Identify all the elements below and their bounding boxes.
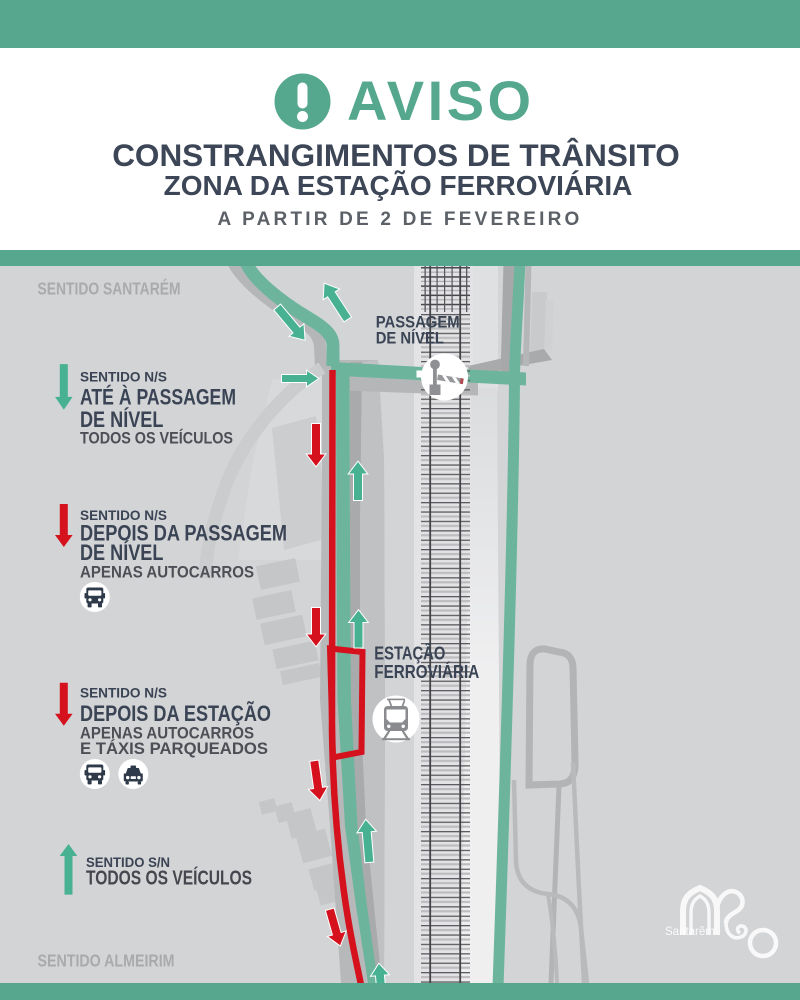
- svg-text:SENTIDO N/S: SENTIDO N/S: [80, 369, 167, 385]
- svg-text:SENTIDO N/S: SENTIDO N/S: [80, 684, 167, 700]
- svg-text:DEPOIS DA ESTAÇÃO: DEPOIS DA ESTAÇÃO: [80, 701, 271, 726]
- svg-text:SENTIDO ALMEIRIM: SENTIDO ALMEIRIM: [38, 951, 175, 971]
- svg-text:SENTIDO SANTARÉM: SENTIDO SANTARÉM: [38, 278, 181, 299]
- svg-text:FERROVIÁRIA: FERROVIÁRIA: [374, 661, 479, 682]
- svg-text:TODOS OS VEÍCULOS: TODOS OS VEÍCULOS: [80, 428, 233, 447]
- svg-text:ATÉ À PASSAGEM: ATÉ À PASSAGEM: [80, 384, 236, 409]
- svg-text:DE NÍVEL: DE NÍVEL: [80, 540, 163, 565]
- svg-text:E TÁXIS PARQUEADOS: E TÁXIS PARQUEADOS: [80, 739, 268, 758]
- svg-text:Santarêm: Santarêm: [665, 926, 715, 938]
- svg-text:ESTAÇÃO: ESTAÇÃO: [374, 643, 445, 664]
- svg-text:TODOS OS VEÍCULOS: TODOS OS VEÍCULOS: [86, 866, 252, 889]
- svg-text:DE NÍVEL: DE NÍVEL: [376, 329, 444, 348]
- svg-text:APENAS AUTOCARROS: APENAS AUTOCARROS: [80, 563, 254, 582]
